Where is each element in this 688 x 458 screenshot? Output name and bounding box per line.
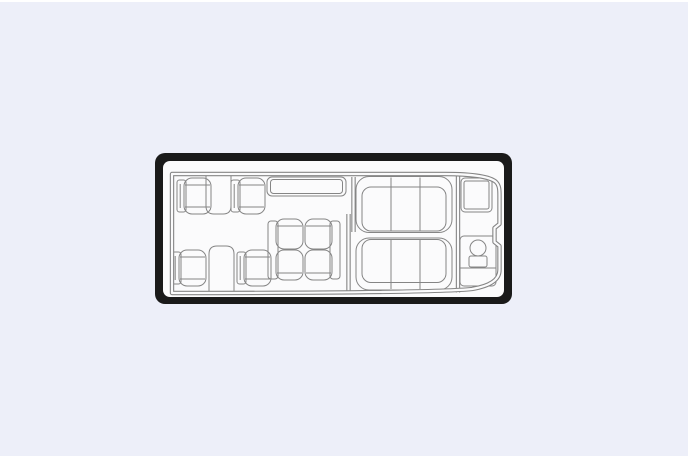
cabin-floor (172, 174, 500, 293)
floorplan-image (0, 0, 688, 458)
